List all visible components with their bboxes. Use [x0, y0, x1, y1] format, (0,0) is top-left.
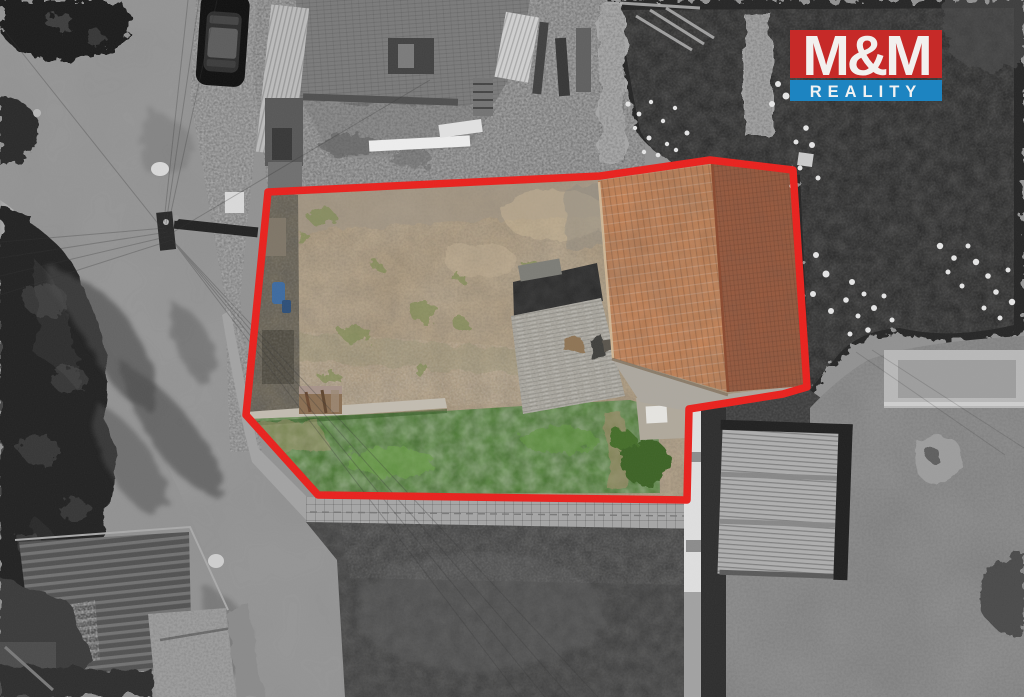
svg-text:M&M: M&M [802, 24, 929, 88]
svg-text:REALITY: REALITY [810, 83, 923, 101]
